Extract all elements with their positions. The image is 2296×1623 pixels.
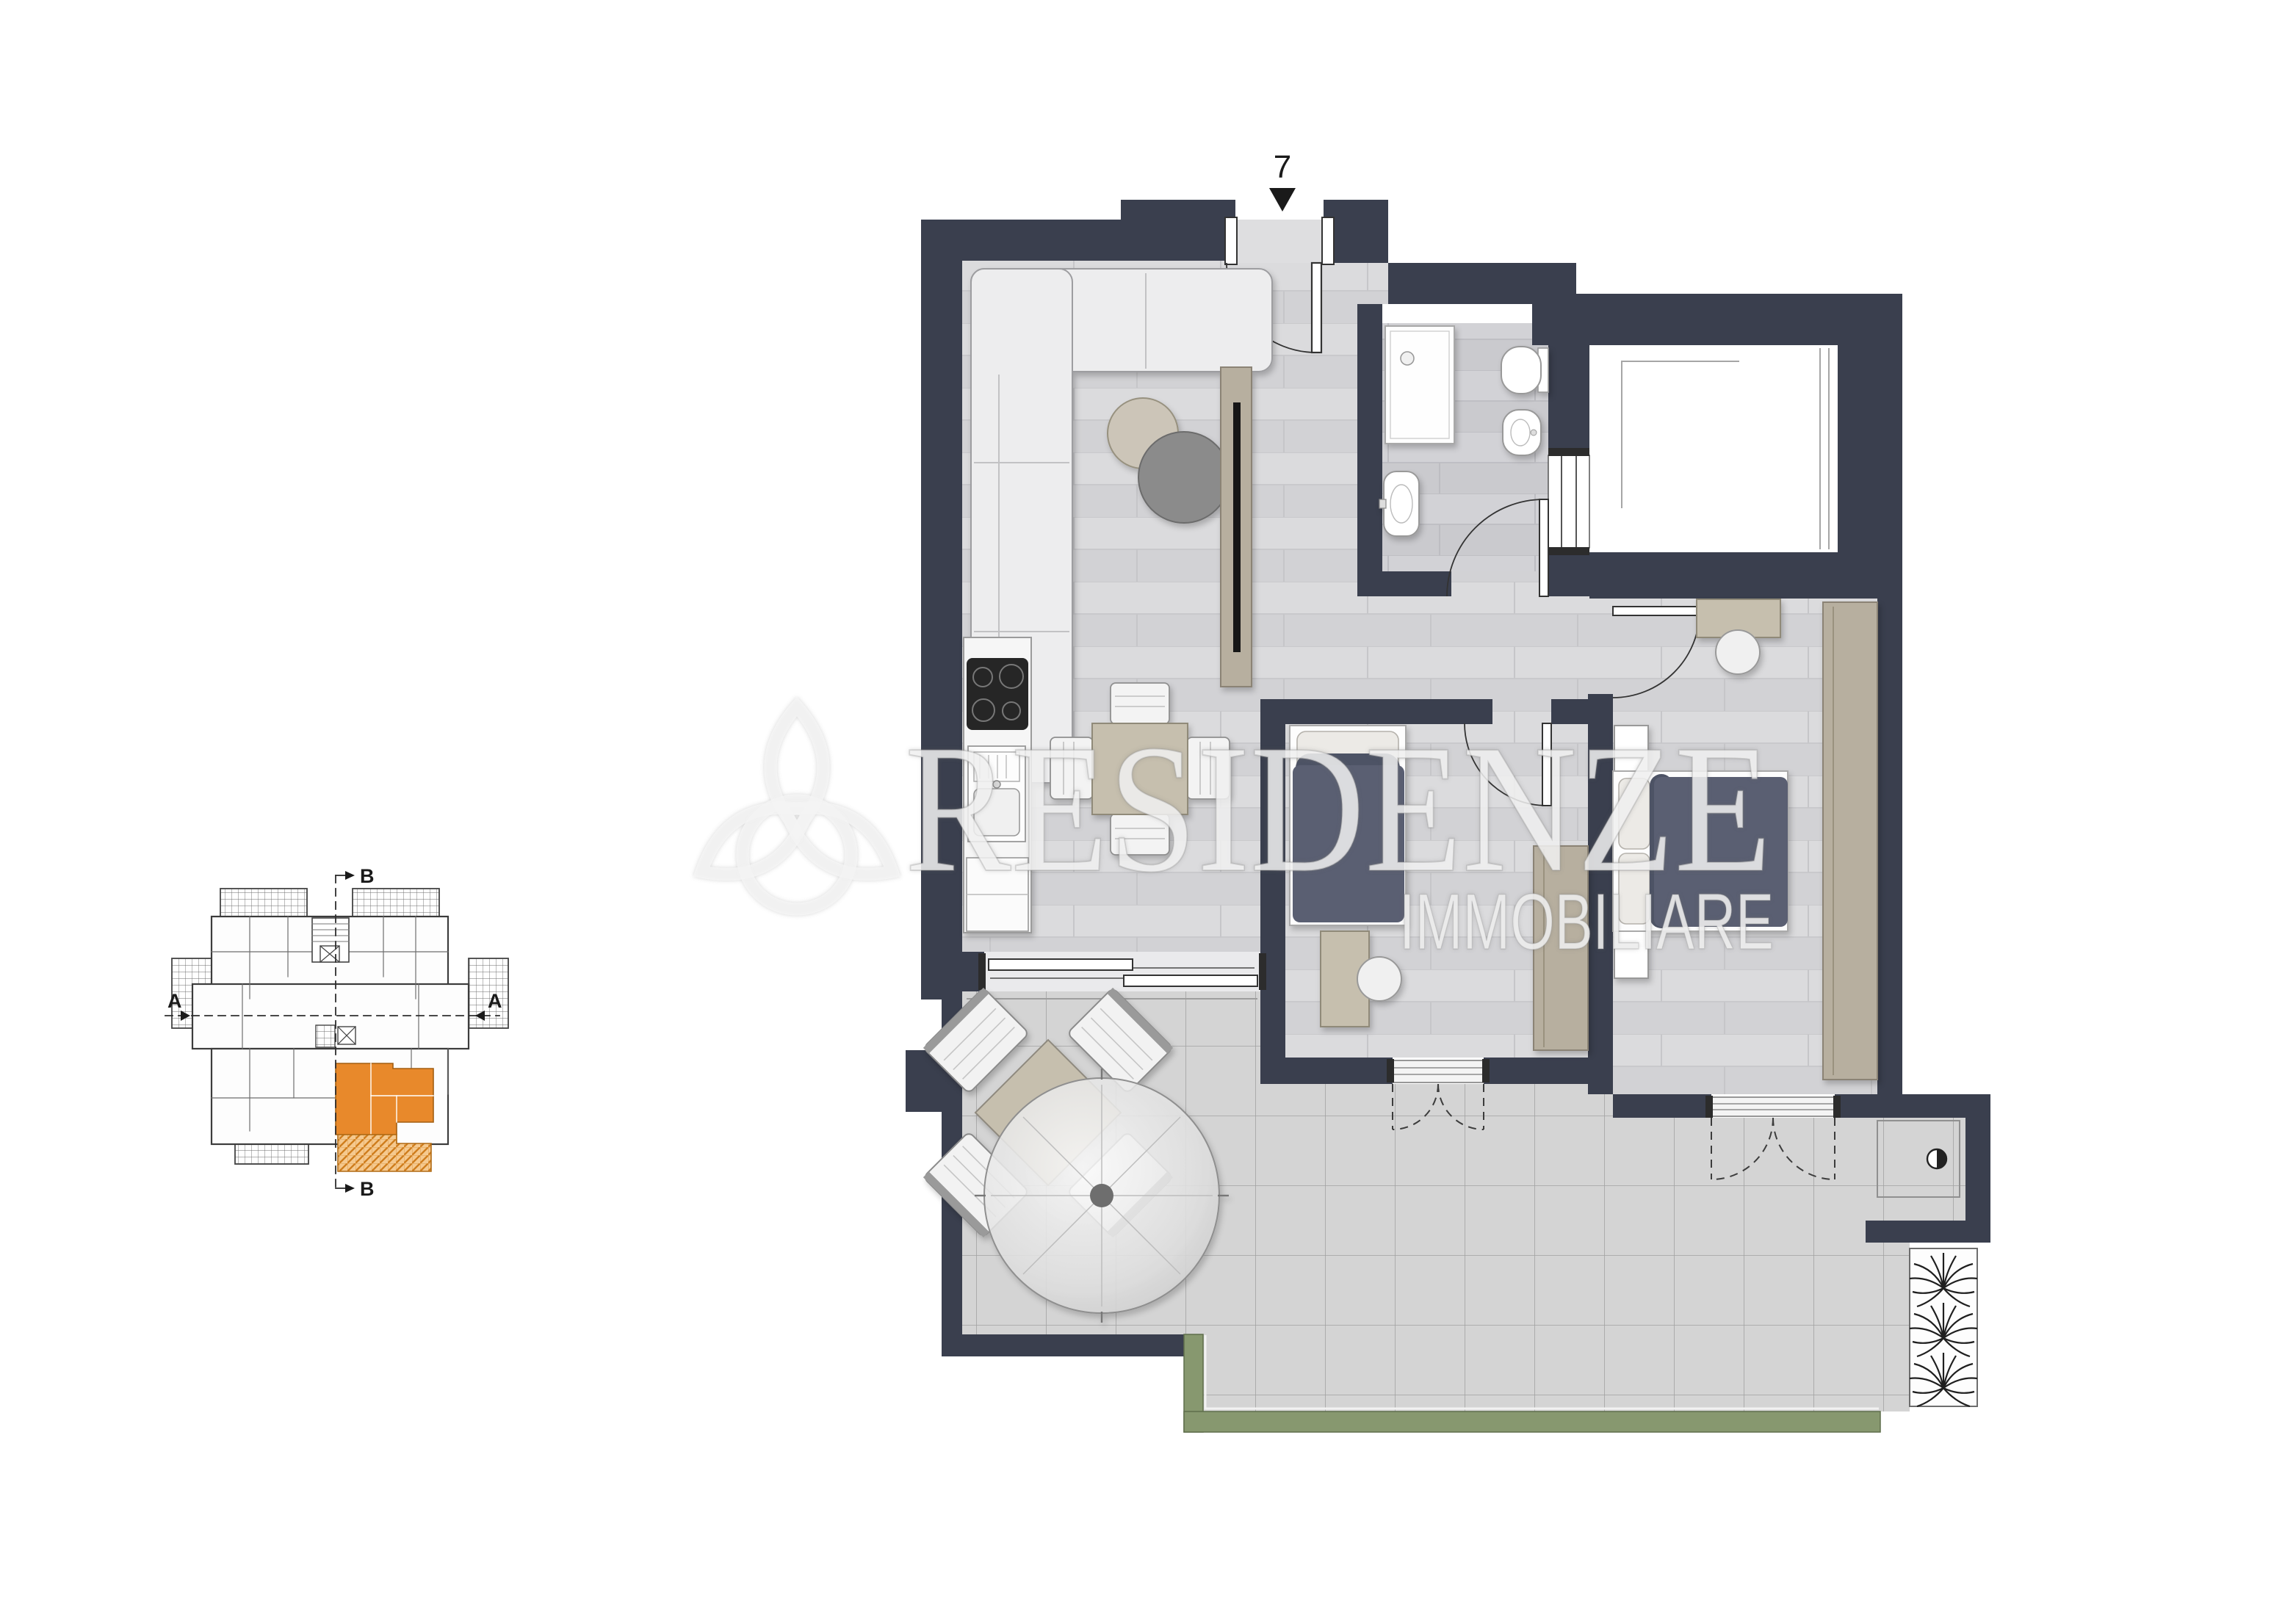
wall-living-bottom (921, 952, 984, 991)
door-jamb (1322, 217, 1334, 264)
section-label-b-bottom: B (360, 1178, 375, 1200)
sliding-panel (989, 959, 1133, 970)
wall-top-left (921, 220, 1121, 261)
window-jamb-hatch (1548, 448, 1589, 456)
shower-drain-icon (1401, 352, 1414, 365)
bidet (1503, 410, 1541, 455)
window-jamb-hatch (1833, 1096, 1841, 1118)
window-jamb-hatch (1259, 953, 1266, 990)
entrance-threshold (1235, 220, 1324, 263)
bath-sink (1379, 471, 1419, 536)
sliding-panel (1124, 975, 1257, 986)
hedge-horizontal (1184, 1411, 1880, 1432)
hall-window (1548, 448, 1589, 555)
tv-unit (1221, 367, 1252, 687)
door-leaf (1539, 499, 1548, 596)
floor-plan-page: 7 (0, 0, 2296, 1623)
wall-void-top (1532, 294, 1902, 345)
wardrobe (1823, 602, 1877, 1080)
wall-master-bottom-left (1613, 1094, 1711, 1118)
entrance-arrow-icon (1269, 188, 1296, 212)
key-plan: A A B B (165, 865, 508, 1200)
coffee-table-dark (1138, 432, 1230, 523)
door-leaf (1613, 607, 1700, 615)
wall-master-bottom-right (1835, 1094, 1990, 1118)
living-sliding-door (978, 952, 1266, 991)
door-leaf (1312, 263, 1321, 353)
section-arrow-icon (345, 871, 355, 880)
window-jamb-hatch (1387, 1059, 1394, 1082)
door-jamb (1225, 217, 1237, 264)
wall-bedroom2-bottom-right (1484, 1058, 1613, 1084)
wall-void-bottom (1589, 552, 1902, 599)
terrace-drain (1927, 1149, 1946, 1168)
wall-top-step (1121, 200, 1235, 261)
section-label-a-left: A (167, 990, 182, 1012)
wall-terrace-right-stub (1965, 1118, 1990, 1221)
wall-bedroom2-bottom-left (1260, 1058, 1393, 1084)
plant-bed (1910, 1248, 1977, 1406)
wall-terrace-stub-horizontal (1866, 1221, 1990, 1243)
section-label-a-right: A (488, 990, 502, 1012)
window-jamb-hatch (1482, 1059, 1490, 1082)
window-jamb-hatch (1548, 547, 1589, 555)
wall-void-right (1838, 345, 1902, 552)
desk-chair (1716, 630, 1760, 674)
key-plan-highlight-unit (336, 1063, 433, 1171)
watermark-logo-icon (688, 706, 906, 909)
watermark-tagline-text: IMMOBILIARE (1399, 877, 1774, 966)
window-jamb-hatch (1705, 1096, 1713, 1118)
toilet (1501, 347, 1548, 394)
window-jamb-hatch (978, 953, 986, 990)
desk-chair (1357, 957, 1401, 1001)
section-arrow-icon (345, 1184, 355, 1193)
tv-screen (1233, 402, 1241, 652)
wall-bath-bottom-left (1382, 571, 1451, 596)
parasol-pole (1090, 1184, 1113, 1207)
entry-floor-corner (1357, 261, 1388, 304)
shower (1385, 326, 1454, 444)
entrance-marker: 7 (1269, 149, 1296, 212)
wall-terrace-bottom (942, 1334, 1184, 1356)
unit-number: 7 (1274, 149, 1291, 185)
section-label-b-top: B (360, 865, 375, 887)
wall-master-right (1877, 599, 1902, 1118)
floor-plan-drawing: 7 (0, 0, 2296, 1623)
void-room-floor (1589, 345, 1838, 552)
faucet-icon (1379, 499, 1386, 508)
wall-living-bath (1357, 304, 1382, 596)
